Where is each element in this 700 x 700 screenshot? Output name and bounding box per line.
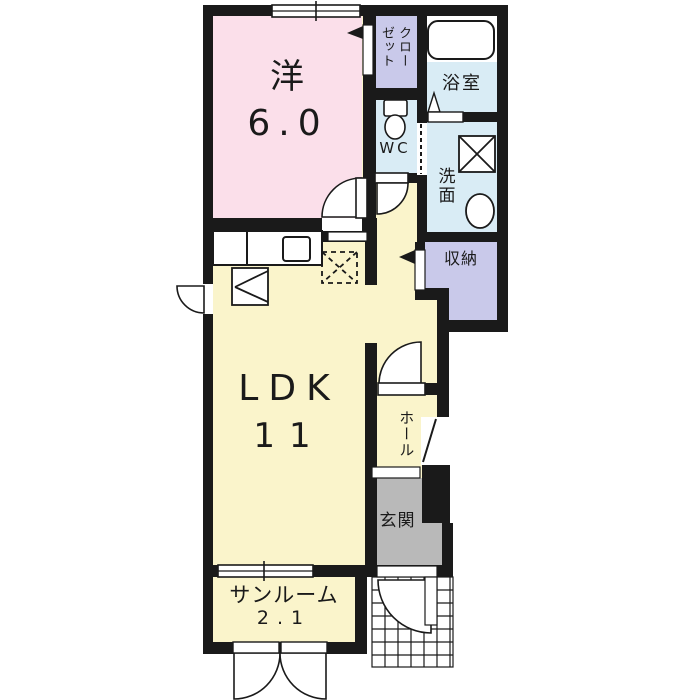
entrance-step (372, 467, 420, 478)
sunroom-size: 2.1 (213, 608, 355, 630)
ldk-size: 11 (213, 417, 365, 456)
sunroom-name: サンルーム (213, 583, 355, 607)
label-closet: クローゼット (378, 21, 412, 73)
kitchen-sliding-panel (328, 232, 367, 241)
kitchen-sink-icon (283, 237, 310, 261)
label-entrance: 玄関 (373, 512, 422, 532)
ldk-name: LDK (213, 368, 365, 409)
label-ldk: LDK 11 (213, 368, 365, 456)
back-door-arc (177, 286, 204, 313)
floorplan-image: 洋 6.0 LDK 11 サンルーム 2.1 クローゼット WC 浴室 洗面 収… (0, 0, 700, 700)
label-storage: 収納 (425, 250, 497, 268)
label-bathroom: 浴室 (427, 74, 497, 95)
label-hall: ホール (397, 403, 414, 465)
label-sunroom: サンルーム 2.1 (213, 583, 355, 630)
western-room-size: 6.0 (213, 103, 363, 144)
stove-icon (232, 268, 268, 305)
washing-machine-pan-icon (459, 136, 495, 172)
bathtub-icon (428, 21, 494, 59)
label-washroom: 洗面 (434, 156, 454, 216)
western-room-name: 洋 (213, 58, 363, 97)
toilet-icon (384, 100, 407, 139)
label-western-room: 洋 6.0 (213, 58, 363, 144)
washbasin-icon (466, 194, 494, 228)
front-door-icon (421, 417, 438, 465)
kitchen-counter (213, 231, 322, 265)
label-wc: WC (373, 140, 417, 157)
